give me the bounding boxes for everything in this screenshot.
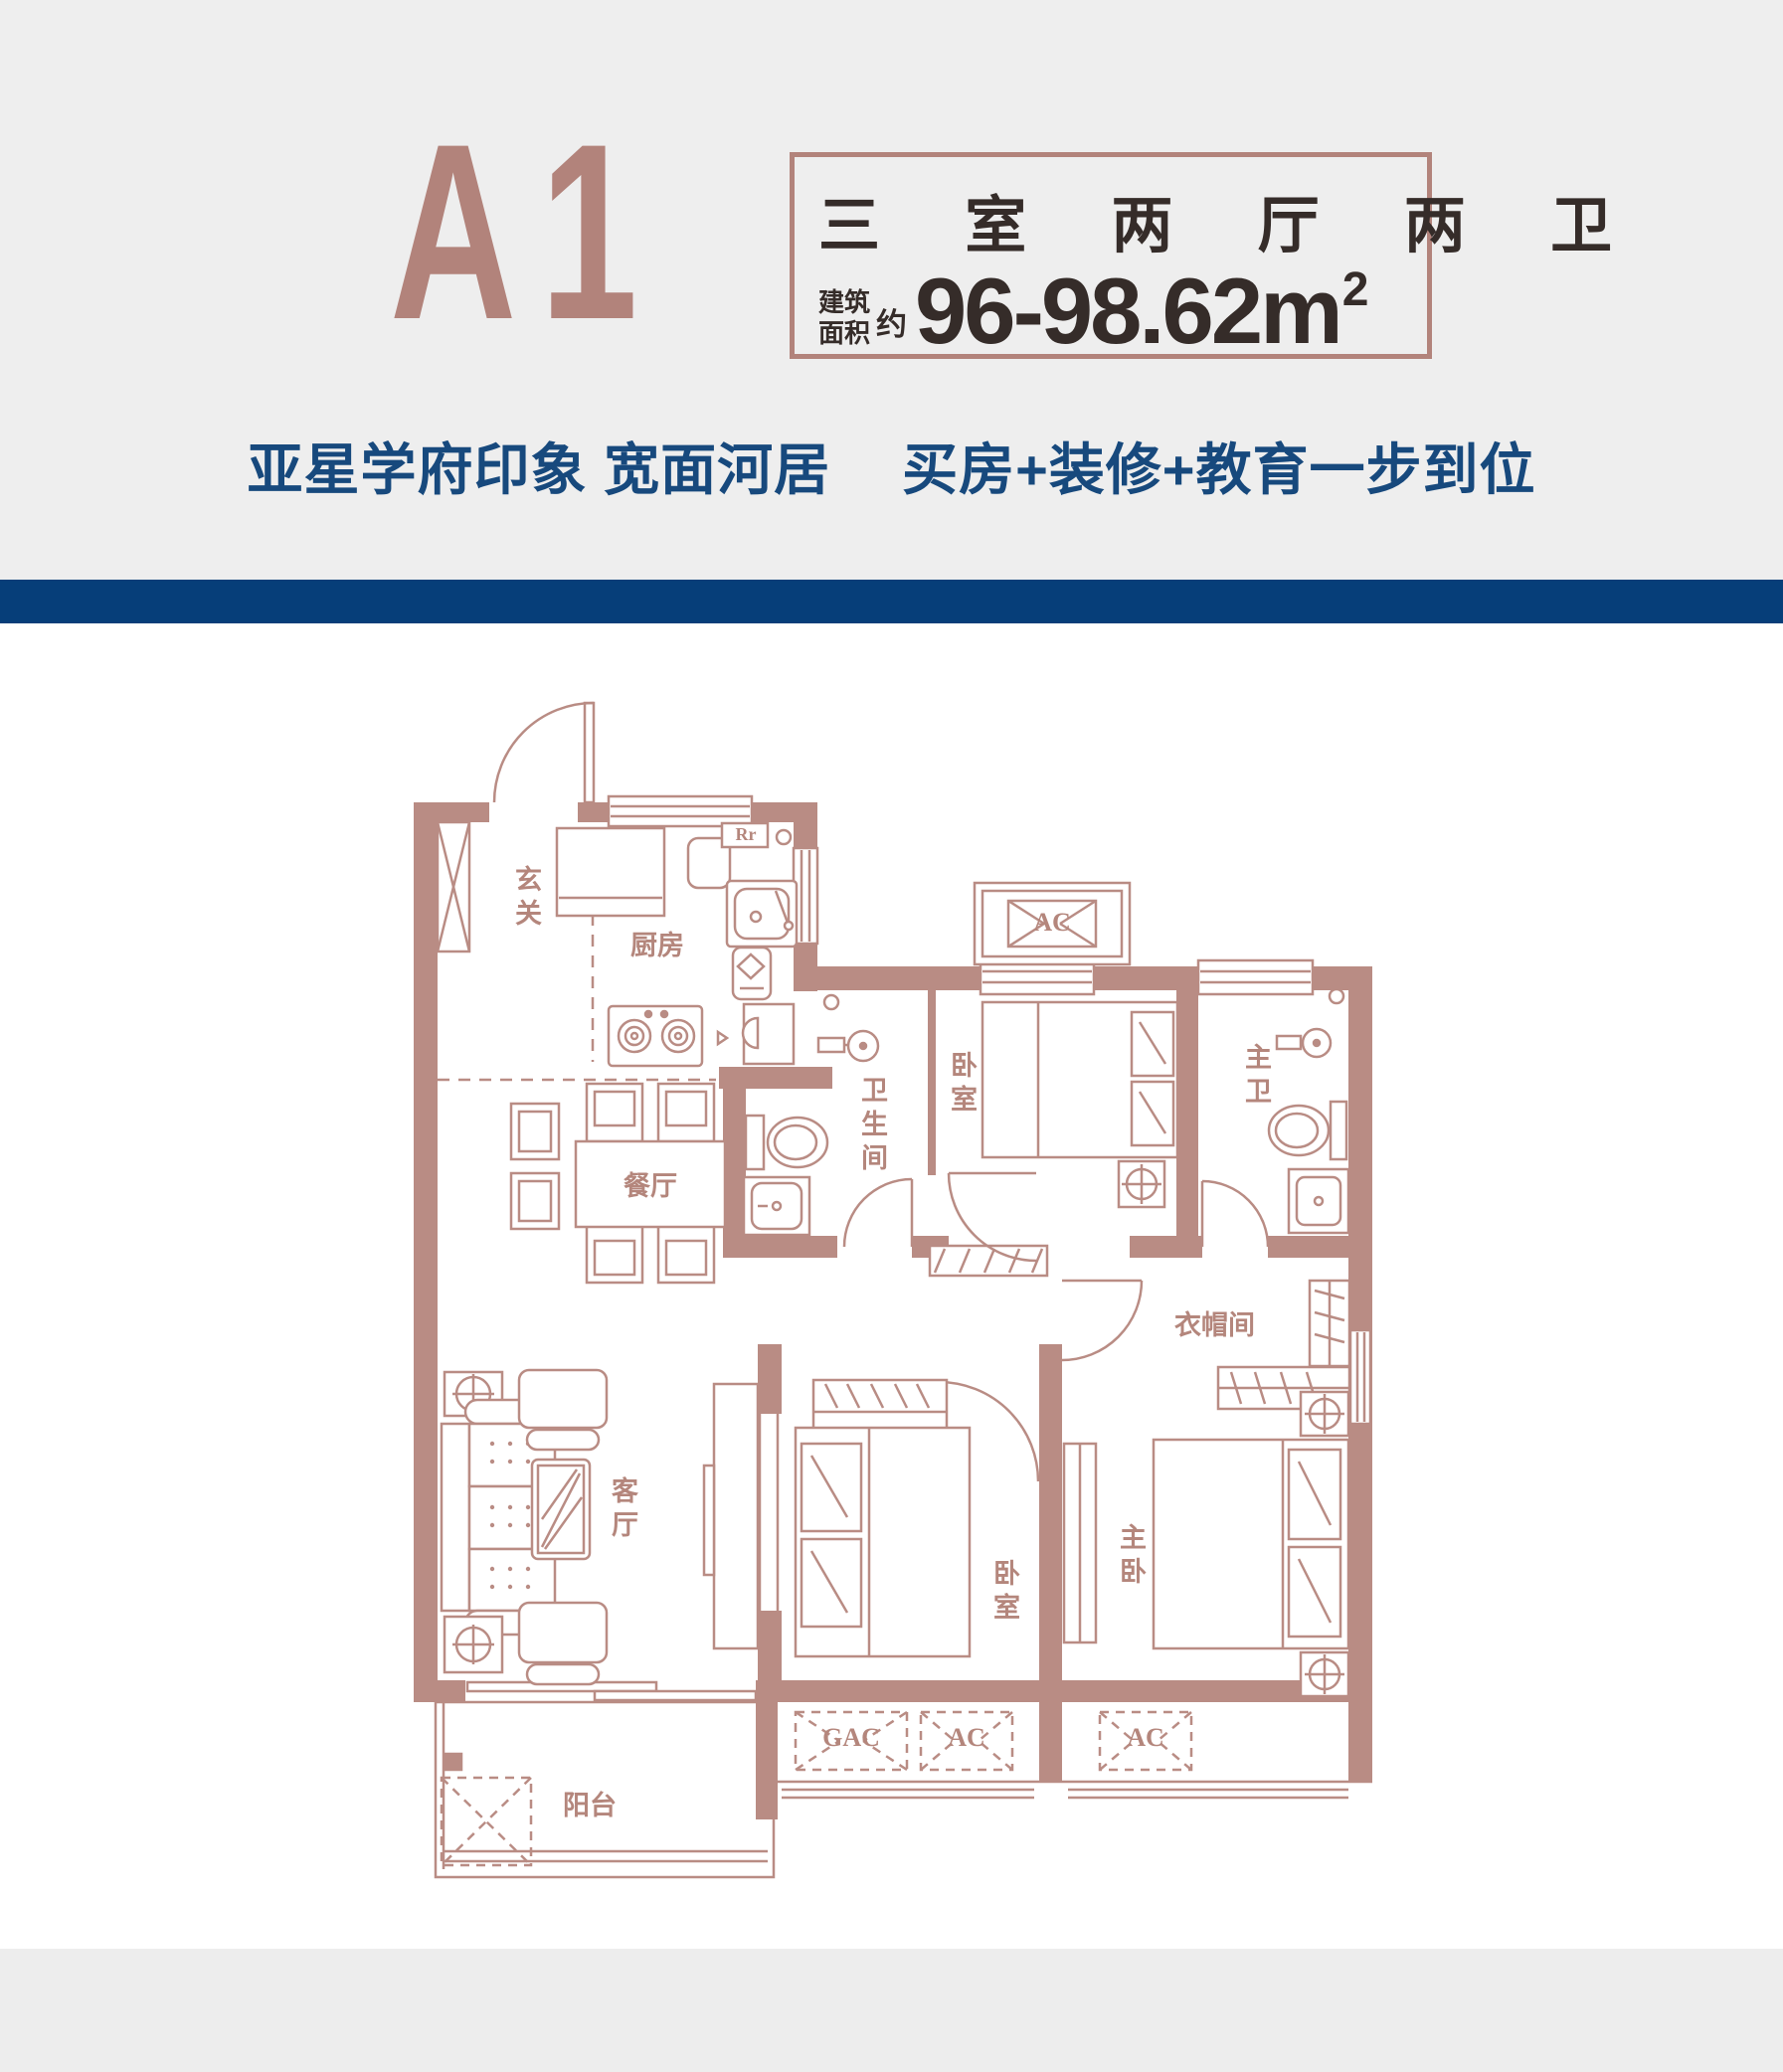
area-label-top: 建筑 xyxy=(818,287,870,318)
area-number: 96-98.62m xyxy=(915,259,1340,363)
room-label-master-bathroom: 主卫 xyxy=(1240,1043,1271,1111)
armchair xyxy=(519,1370,607,1428)
footer-strip xyxy=(0,1949,1783,2072)
tv-cabinet xyxy=(714,1384,758,1648)
area-label: 建筑 面积 xyxy=(818,287,870,348)
room-label-master-bedroom: 主卧 xyxy=(1115,1523,1146,1591)
sofa-back xyxy=(442,1424,469,1611)
marker-ac-north: AC xyxy=(1024,908,1080,938)
header-section: A1 三 室 两 厅 两 卫 建筑 面积 约 96-98.62m2 亚星学府印象… xyxy=(0,0,1783,580)
room-label-bedroom-north: 卧室 xyxy=(946,1051,977,1119)
floor-plan-section: 玄关 厨房 餐厅 卫生间 卧室 主卫 衣帽间 客厅 卧室 主卧 阳台 Rr AC… xyxy=(0,623,1783,1949)
area-approx: 约 xyxy=(876,299,907,344)
plan-code-title: A1 xyxy=(390,107,661,358)
room-label-living: 客厅 xyxy=(607,1476,637,1544)
bedroom-north-furniture xyxy=(982,1002,1177,1207)
marker-ac-south-east: AC xyxy=(1114,1723,1177,1753)
divider-bar xyxy=(0,580,1783,623)
spec-box: 三 室 两 厅 两 卫 建筑 面积 约 96-98.62m2 xyxy=(790,152,1432,359)
master-bedroom-furniture xyxy=(1064,1392,1348,1696)
area-superscript: 2 xyxy=(1342,263,1366,316)
tagline-right: 买房+装修+教育一步到位 xyxy=(902,438,1535,501)
room-label-kitchen: 厨房 xyxy=(630,931,684,961)
marker-ac-south-center: AC xyxy=(935,1723,998,1753)
room-label-bedroom-south: 卧室 xyxy=(988,1559,1019,1627)
master-bath-fixtures xyxy=(1269,989,1348,1233)
room-label-foyer: 玄关 xyxy=(510,865,541,933)
armchair xyxy=(519,1603,607,1662)
room-label-cloakroom: 衣帽间 xyxy=(1174,1310,1255,1341)
foyer-closet xyxy=(438,822,469,951)
cloakroom-racks xyxy=(1218,1281,1349,1409)
room-label-dining: 餐厅 xyxy=(624,1171,677,1202)
balcony-outline xyxy=(436,1702,774,1877)
area-value: 96-98.62m2 xyxy=(915,268,1365,354)
dining-furniture xyxy=(511,1084,725,1283)
marker-fridge: Rr xyxy=(726,824,766,845)
room-label-balcony: 阳台 xyxy=(563,1791,617,1821)
room-label-bathroom: 卫生间 xyxy=(856,1076,887,1177)
tagline: 亚星学府印象 宽面河居买房+装修+教育一步到位 xyxy=(0,426,1783,506)
area-label-bottom: 面积 xyxy=(818,318,870,349)
living-room-furniture xyxy=(442,1370,758,1684)
tagline-left: 亚星学府印象 宽面河居 xyxy=(248,438,831,501)
area-spec-line: 建筑 面积 约 96-98.62m2 xyxy=(818,268,1403,354)
rooms-spec-line: 三 室 两 厅 两 卫 xyxy=(818,175,1403,264)
floor-plan-drawing xyxy=(0,623,1783,1949)
bedroom-south-furniture xyxy=(796,1380,970,1656)
marker-gac-south: GAC xyxy=(815,1723,887,1753)
